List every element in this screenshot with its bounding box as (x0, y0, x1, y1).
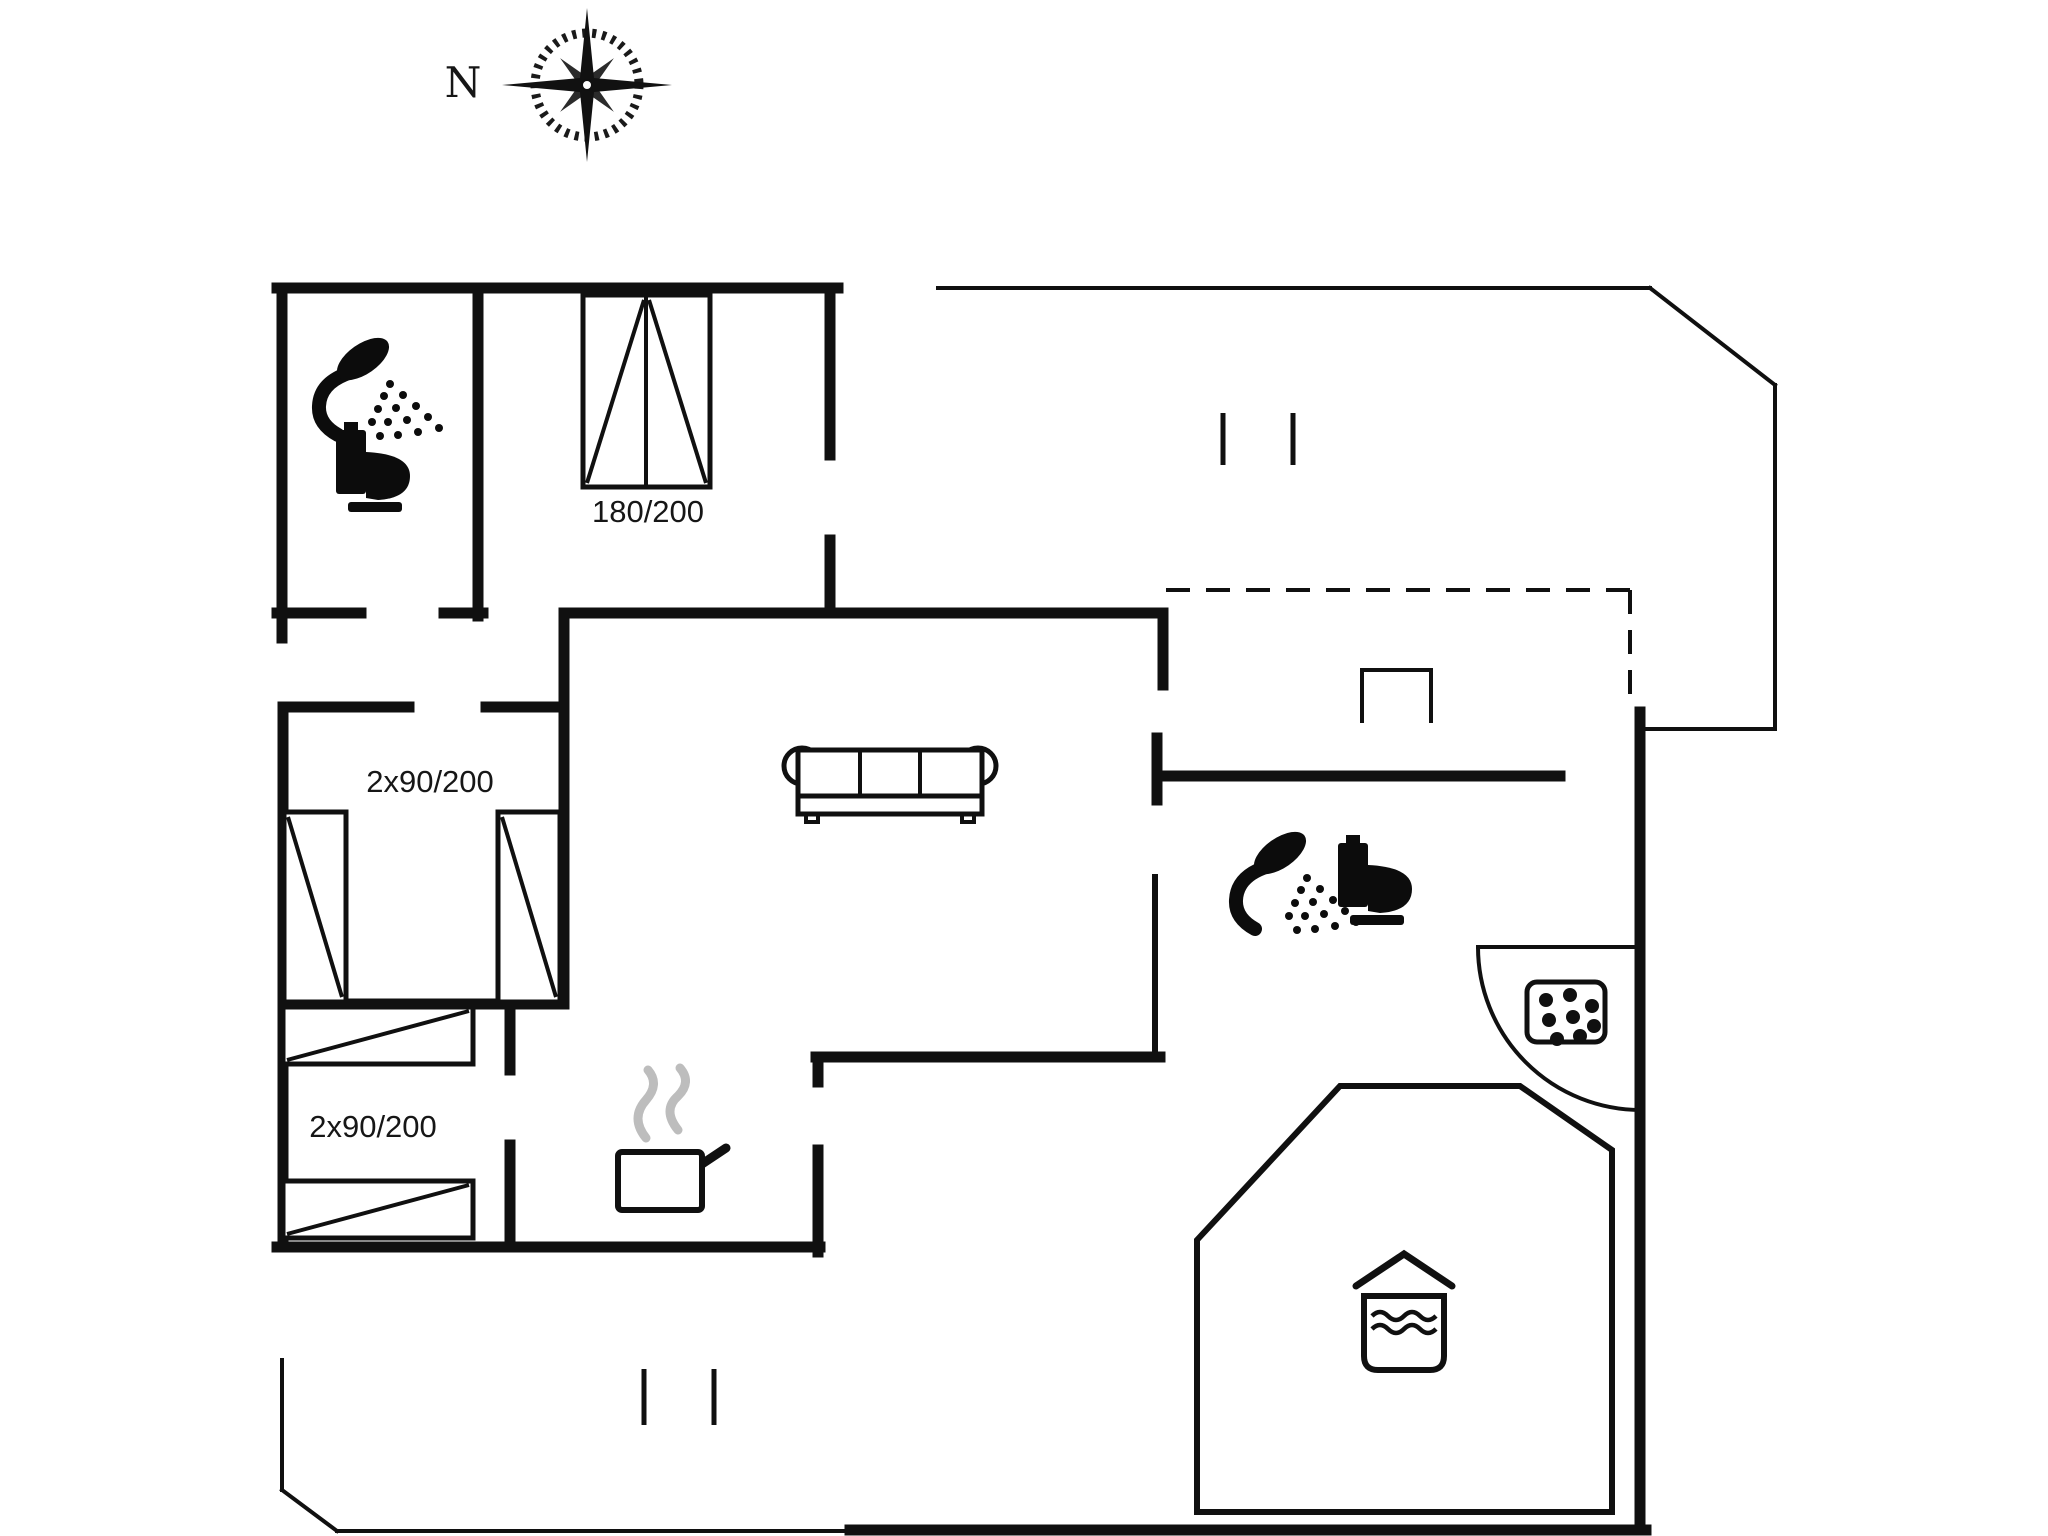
bed-label-twin-upper: 2x90/200 (366, 764, 494, 799)
single-bed-icon (283, 1007, 473, 1064)
compass-rose (502, 8, 672, 162)
bed-label-twin-lower: 2x90/200 (309, 1109, 437, 1144)
bed-label-double: 180/200 (592, 494, 704, 529)
single-bed-icon (283, 1181, 473, 1238)
single-bed-icon (284, 812, 346, 1002)
bathroom1-shower-icon (319, 330, 443, 440)
steam-icon (638, 1070, 654, 1138)
window-marker-top-right (1223, 413, 1293, 465)
single-bed-icon (498, 812, 560, 1002)
bathroom2-toilet-icon (1338, 835, 1412, 925)
compass-north-label: N (445, 58, 482, 107)
steam-icon (670, 1068, 686, 1130)
dashed-boundary (1166, 590, 1630, 700)
floor-plan-page: N 180/200 2x90/200 2x90/200 (0, 0, 2048, 1536)
sofa-icon (784, 748, 996, 822)
hot-tub-icon (1356, 1254, 1452, 1370)
wardrobe-icon (1362, 670, 1431, 721)
floor-plan-canvas: N 180/200 2x90/200 2x90/200 (0, 0, 2048, 1536)
hob-icon (1527, 982, 1605, 1046)
window-marker-terrace (644, 1369, 714, 1425)
cooking-pot-icon (618, 1068, 726, 1210)
double-bed-icon (583, 295, 710, 487)
